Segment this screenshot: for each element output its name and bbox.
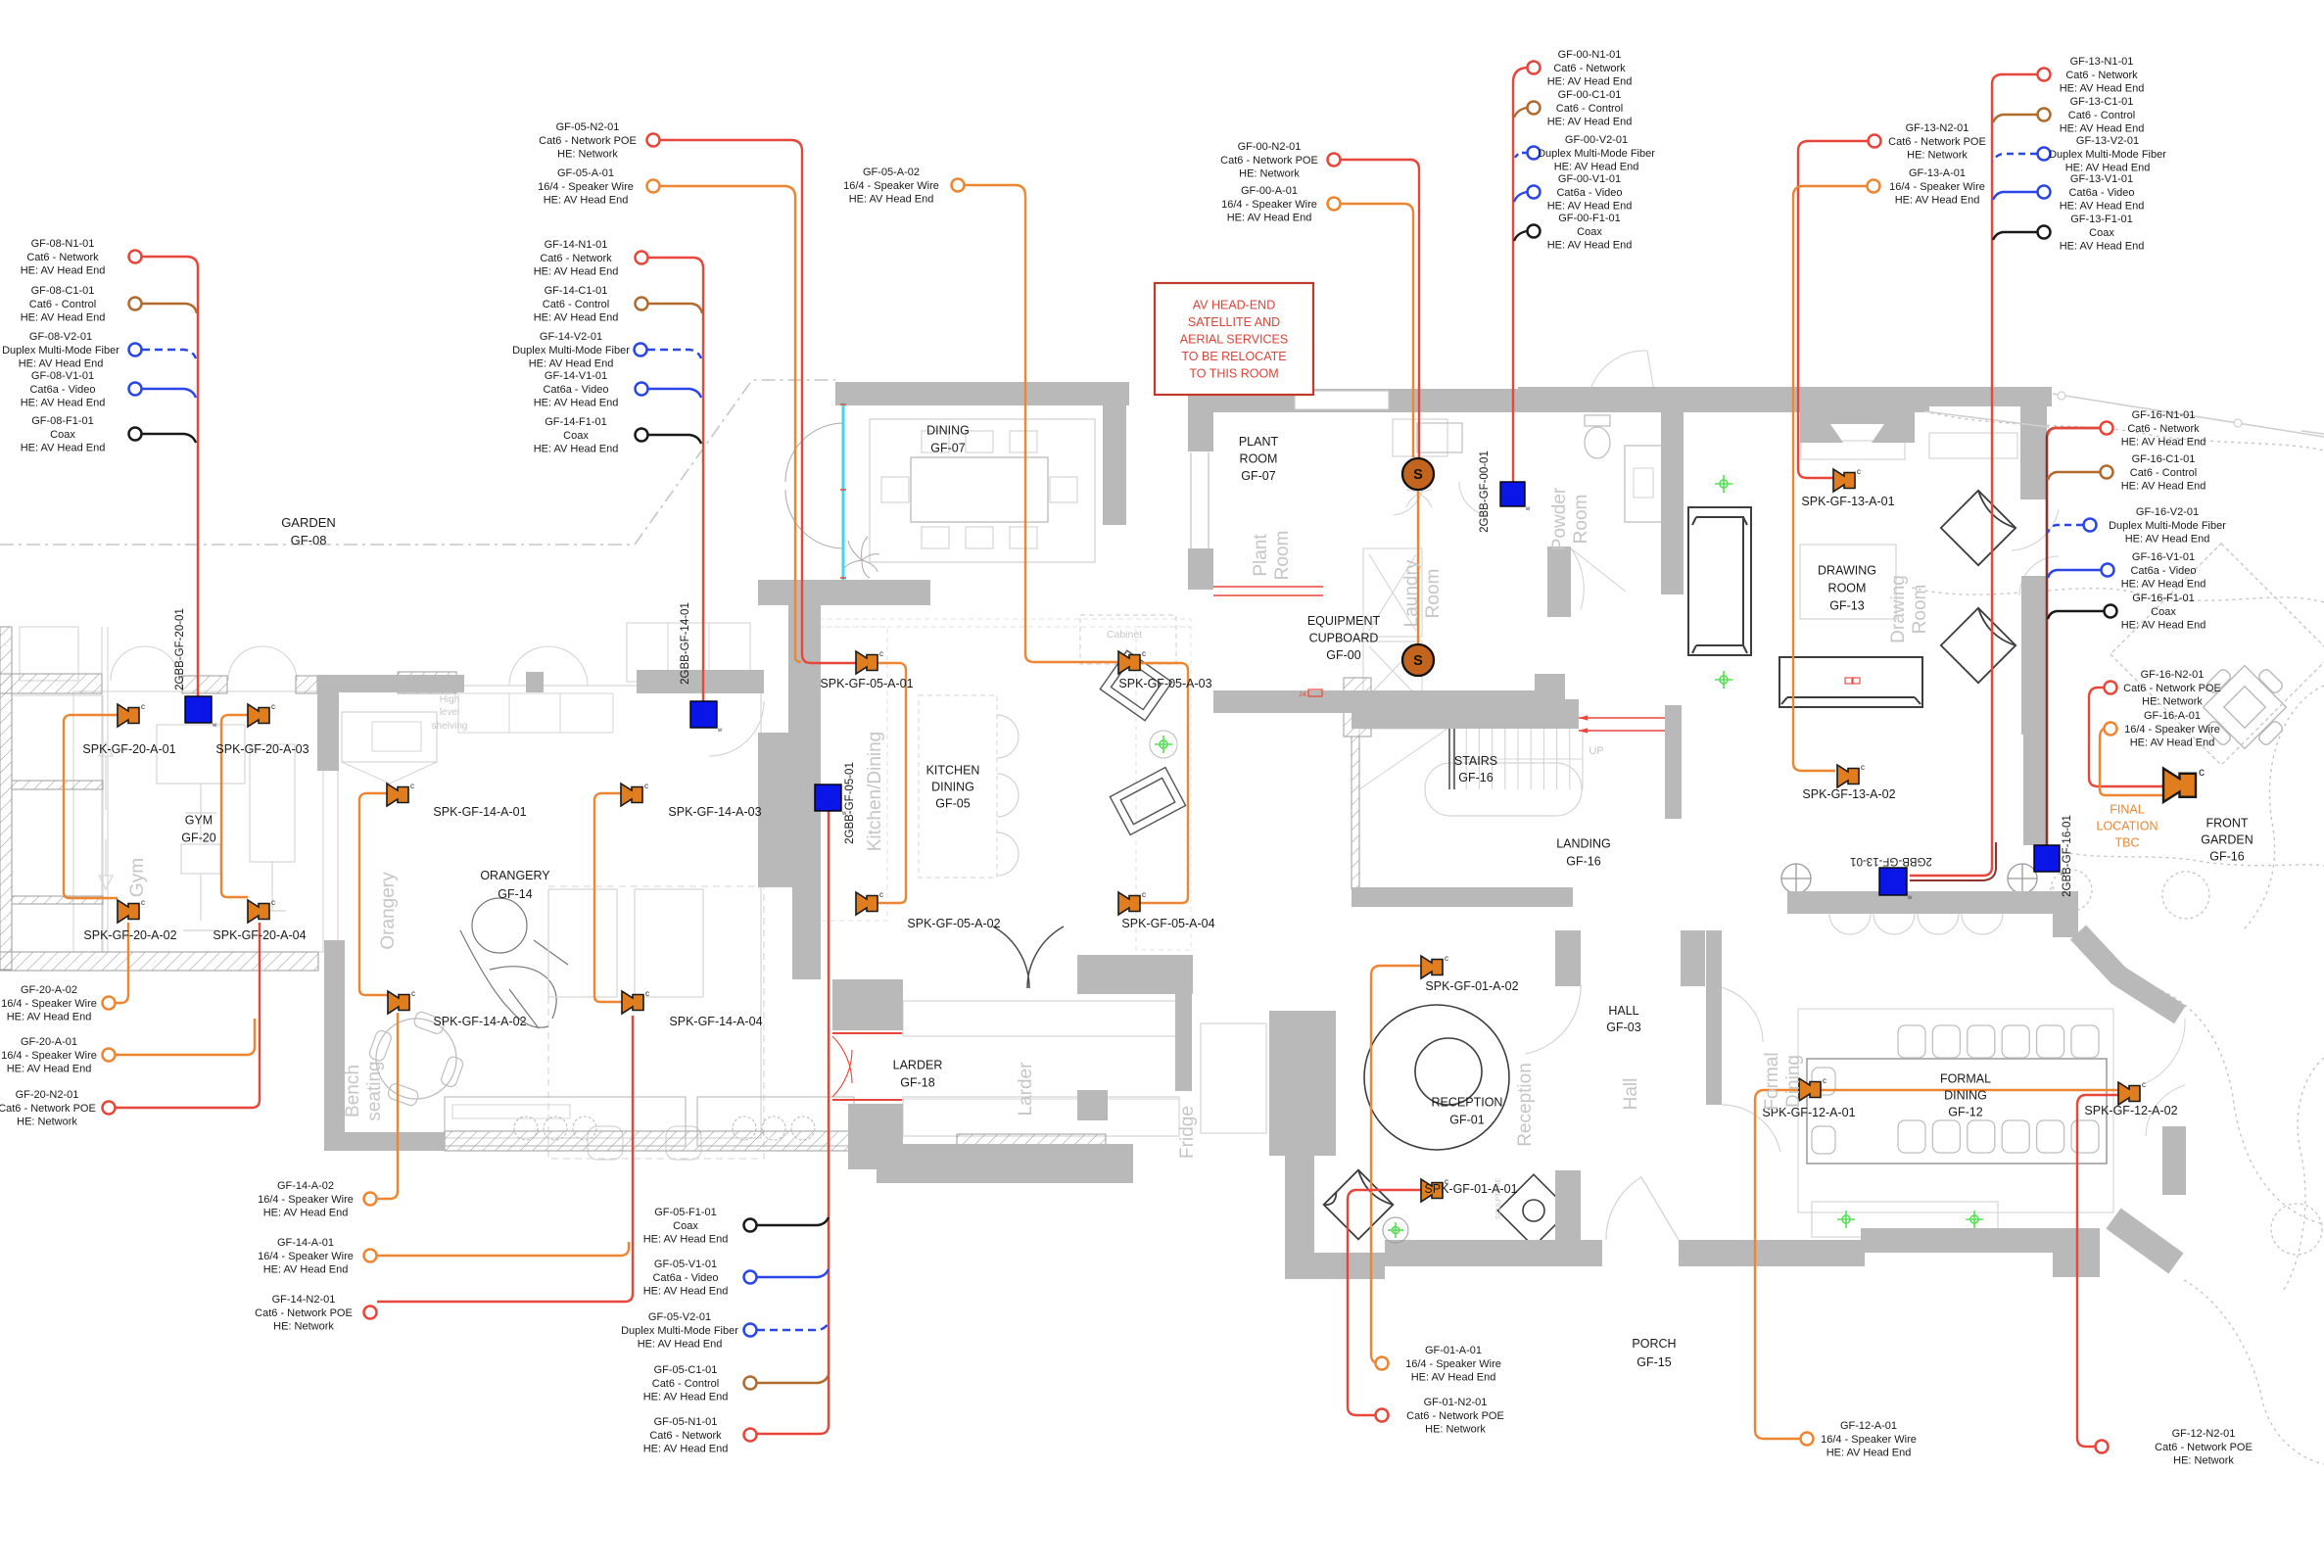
svg-text:GF-13-F1-01: GF-13-F1-01 <box>2070 214 2133 225</box>
svg-text:HE: AV Head End: HE: AV Head End <box>643 1392 729 1403</box>
svg-text:Cat6 - Network: Cat6 - Network <box>26 252 99 263</box>
svg-text:GF-12-A-01: GF-12-A-01 <box>1840 1420 1897 1432</box>
svg-text:Duplex Multi-Mode Fiber: Duplex Multi-Mode Fiber <box>512 345 630 356</box>
svg-text:Cat6 - Network: Cat6 - Network <box>540 253 612 264</box>
svg-text:GF-13-V1-01: GF-13-V1-01 <box>2070 173 2133 185</box>
svg-text:c: c <box>879 890 883 899</box>
svg-text:SPK-GF-05-A-01: SPK-GF-05-A-01 <box>820 677 913 690</box>
svg-text:GF-14: GF-14 <box>498 887 532 901</box>
svg-text:SPK-GF-14-A-02: SPK-GF-14-A-02 <box>433 1015 526 1028</box>
svg-text:LOCATION: LOCATION <box>2097 819 2158 832</box>
svg-text:HE: AV Head End: HE: AV Head End <box>21 398 106 409</box>
svg-text:GF-05-A-02: GF-05-A-02 <box>863 166 920 178</box>
svg-text:Dining: Dining <box>1783 1055 1804 1108</box>
svg-text:GYM: GYM <box>185 813 213 827</box>
svg-text:HE: AV Head End: HE: AV Head End <box>21 312 106 324</box>
svg-text:Cat6 - Control: Cat6 - Control <box>1556 103 1623 115</box>
svg-text:c: c <box>1857 467 1861 476</box>
svg-text:16/4 - Speaker Wire: 16/4 - Speaker Wire <box>258 1251 354 1262</box>
svg-text:GF-20: GF-20 <box>181 831 215 844</box>
svg-text:GF-13: GF-13 <box>1829 598 1864 612</box>
svg-text:GF-00-C1-01: GF-00-C1-01 <box>1558 89 1622 101</box>
svg-text:HE: AV Head End: HE: AV Head End <box>263 1208 349 1219</box>
svg-text:HE: Network: HE: Network <box>2142 696 2203 708</box>
svg-text:HE: AV Head End: HE: AV Head End <box>638 1339 723 1351</box>
svg-text:HE: AV Head End: HE: AV Head End <box>7 1064 92 1075</box>
svg-text:HE: AV Head End: HE: AV Head End <box>2125 534 2210 546</box>
svg-text:Cat6a - Video: Cat6a - Video <box>2130 565 2196 577</box>
svg-text:c: c <box>411 989 415 998</box>
svg-text:GF-08-F1-01: GF-08-F1-01 <box>31 415 94 427</box>
svg-text:GF-12: GF-12 <box>1948 1105 1982 1118</box>
svg-text:Duplex Multi-Mode Fiber: Duplex Multi-Mode Fiber <box>2049 149 2166 161</box>
svg-text:SPK-GF-13-A-02: SPK-GF-13-A-02 <box>1802 787 1895 801</box>
svg-text:SPK-GF-14-A-01: SPK-GF-14-A-01 <box>433 805 526 819</box>
svg-text:ROOM: ROOM <box>1240 451 1278 465</box>
svg-text:w: w <box>717 728 723 734</box>
svg-text:Cat6 - Network: Cat6 - Network <box>2127 423 2200 435</box>
svg-text:Room: Room <box>1571 495 1591 545</box>
svg-text:c: c <box>2142 1080 2146 1089</box>
svg-text:c: c <box>271 702 275 711</box>
svg-text:TBC: TBC <box>2115 835 2140 849</box>
svg-text:FRONT: FRONT <box>2205 816 2248 830</box>
svg-text:Bench: Bench <box>343 1065 363 1117</box>
svg-text:HE: AV Head End: HE: AV Head End <box>1411 1372 1496 1384</box>
svg-text:Cat6 - Network: Cat6 - Network <box>2065 70 2138 81</box>
svg-text:2GBB-GF-13-01: 2GBB-GF-13-01 <box>1850 855 1932 867</box>
svg-text:16/4 - Speaker Wire: 16/4 - Speaker Wire <box>1 1050 97 1062</box>
svg-text:CUPBOARD: CUPBOARD <box>1309 631 1379 644</box>
svg-text:FINAL: FINAL <box>2110 802 2144 816</box>
svg-text:HE: Network: HE: Network <box>1239 168 1300 180</box>
svg-text:GF-13-V2-01: GF-13-V2-01 <box>2076 135 2139 147</box>
svg-text:Cat6 - Control: Cat6 - Control <box>2130 467 2197 479</box>
svg-text:HE: AV Head End: HE: AV Head End <box>1826 1448 1912 1459</box>
svg-text:GF-00-A-01: GF-00-A-01 <box>1241 185 1298 197</box>
svg-text:GF-15: GF-15 <box>1636 1355 1671 1369</box>
svg-text:Reception: Reception <box>1515 1063 1536 1147</box>
svg-text:shelving: shelving <box>432 721 468 732</box>
svg-text:LANDING: LANDING <box>1556 836 1611 850</box>
svg-text:GF-05-C1-01: GF-05-C1-01 <box>654 1364 718 1376</box>
svg-text:GF-05-N1-01: GF-05-N1-01 <box>654 1416 718 1428</box>
svg-text:TO BE RELOCATE: TO BE RELOCATE <box>1181 350 1286 363</box>
svg-text:GF-01-A-01: GF-01-A-01 <box>1425 1345 1482 1356</box>
svg-text:c: c <box>2199 765 2205 779</box>
svg-text:16/4 - Speaker Wire: 16/4 - Speaker Wire <box>1821 1434 1917 1446</box>
svg-text:GF-08-C1-01: GF-08-C1-01 <box>31 285 95 297</box>
svg-text:GF-05-V1-01: GF-05-V1-01 <box>654 1259 717 1270</box>
svg-text:Cat6 - Network POE: Cat6 - Network POE <box>2155 1442 2253 1453</box>
svg-text:16/4 - Speaker Wire: 16/4 - Speaker Wire <box>538 181 634 193</box>
svg-text:GF-16: GF-16 <box>1566 854 1600 868</box>
svg-text:GF-08: GF-08 <box>291 533 327 547</box>
svg-text:Cat6 - Network POE: Cat6 - Network POE <box>2123 683 2221 694</box>
svg-text:Cabinet: Cabinet <box>1107 629 1142 641</box>
svg-text:GF-16-V1-01: GF-16-V1-01 <box>2132 551 2195 563</box>
svg-text:HE: AV Head End: HE: AV Head End <box>2060 241 2145 253</box>
svg-text:HE: AV Head End: HE: AV Head End <box>544 195 629 207</box>
svg-text:HE: Network: HE: Network <box>2173 1455 2234 1467</box>
svg-text:RECEPTION: RECEPTION <box>1432 1095 1503 1109</box>
svg-text:16/4 - Speaker Wire: 16/4 - Speaker Wire <box>258 1194 354 1206</box>
svg-text:Plant: Plant <box>1251 534 1271 577</box>
svg-text:DRAWING: DRAWING <box>1818 563 1876 577</box>
svg-text:AV HEAD-END: AV HEAD-END <box>1193 298 1276 311</box>
svg-text:HE: AV Head End: HE: AV Head End <box>534 266 619 278</box>
svg-text:Cat6 - Network POE: Cat6 - Network POE <box>255 1307 353 1319</box>
svg-text:GF-14-C1-01: GF-14-C1-01 <box>545 285 608 297</box>
svg-text:GF-16-F1-01: GF-16-F1-01 <box>2132 593 2195 604</box>
svg-text:GF-00-V1-01: GF-00-V1-01 <box>1558 173 1621 185</box>
svg-text:HE: AV Head End: HE: AV Head End <box>529 358 614 370</box>
svg-text:HE: AV Head End: HE: AV Head End <box>2130 737 2215 749</box>
svg-text:Drawing: Drawing <box>1888 575 1909 643</box>
svg-text:ORANGERY: ORANGERY <box>480 869 550 882</box>
svg-text:GF-14-N1-01: GF-14-N1-01 <box>545 239 608 251</box>
svg-text:SPK-GF-14-A-04: SPK-GF-14-A-04 <box>669 1015 762 1028</box>
svg-text:Cat6 - Network POE: Cat6 - Network POE <box>0 1103 96 1115</box>
svg-text:GF-07: GF-07 <box>930 441 965 454</box>
svg-text:Cat6 - Network POE: Cat6 - Network POE <box>1406 1410 1504 1422</box>
svg-text:SPK-GF-01-A-02: SPK-GF-01-A-02 <box>1425 979 1518 993</box>
svg-text:HE: AV Head End: HE: AV Head End <box>2065 163 2151 174</box>
svg-text:GF-20-A-02: GF-20-A-02 <box>21 984 77 996</box>
svg-text:GF-01-N2-01: GF-01-N2-01 <box>1424 1397 1488 1408</box>
svg-text:c: c <box>271 898 275 907</box>
svg-text:GF-20-N2-01: GF-20-N2-01 <box>16 1089 79 1101</box>
svg-text:SATELLITE AND: SATELLITE AND <box>1188 315 1280 329</box>
svg-text:Laundry: Laundry <box>1401 559 1422 627</box>
svg-text:Cat6 - Control: Cat6 - Control <box>543 299 609 310</box>
svg-text:KITCHEN: KITCHEN <box>926 763 980 777</box>
svg-text:GARDEN: GARDEN <box>281 515 336 530</box>
svg-text:Duplex Multi-Mode Fiber: Duplex Multi-Mode Fiber <box>2 345 119 356</box>
svg-text:Cat6 - Control: Cat6 - Control <box>29 299 96 310</box>
svg-text:24: 24 <box>1299 691 1306 698</box>
svg-text:Cat6 - Network: Cat6 - Network <box>649 1430 722 1442</box>
svg-text:seating: seating <box>364 1061 385 1120</box>
svg-text:Cat6 - Control: Cat6 - Control <box>652 1378 719 1390</box>
svg-text:S: S <box>1413 467 1423 483</box>
svg-text:HE: AV Head End: HE: AV Head End <box>19 358 104 370</box>
svg-text:GF-13-N1-01: GF-13-N1-01 <box>2070 56 2134 68</box>
svg-text:16/4 - Speaker Wire: 16/4 - Speaker Wire <box>1889 181 1985 193</box>
svg-text:GF-20-A-01: GF-20-A-01 <box>21 1036 77 1048</box>
svg-text:Cat6a - Video: Cat6a - Video <box>1556 187 1622 199</box>
svg-text:SPK-GF-20-A-03: SPK-GF-20-A-03 <box>215 742 308 756</box>
svg-text:Hall: Hall <box>1621 1078 1641 1111</box>
svg-text:Cat6 - Network: Cat6 - Network <box>1553 63 1626 74</box>
svg-text:GF-14-A-02: GF-14-A-02 <box>277 1180 334 1192</box>
svg-text:HE: AV Head End: HE: AV Head End <box>1227 213 1312 224</box>
svg-text:Cat6a - Video: Cat6a - Video <box>543 384 608 396</box>
svg-text:S: S <box>1413 653 1423 669</box>
svg-text:HALL: HALL <box>1608 1004 1638 1018</box>
svg-text:SPK-GF-20-A-02: SPK-GF-20-A-02 <box>83 928 176 942</box>
svg-text:Orangery: Orangery <box>378 872 399 950</box>
svg-text:GF-05: GF-05 <box>935 796 970 810</box>
svg-text:HE: AV Head End: HE: AV Head End <box>1547 240 1633 252</box>
svg-text:c: c <box>141 898 145 907</box>
svg-text:HE: Network: HE: Network <box>1425 1424 1486 1436</box>
svg-text:SPK-GF-13-A-01: SPK-GF-13-A-01 <box>1801 495 1894 508</box>
svg-text:HE: AV Head End: HE: AV Head End <box>1547 201 1633 213</box>
svg-text:SPK-GF-05-A-04: SPK-GF-05-A-04 <box>1121 917 1214 930</box>
svg-text:STAIRS: STAIRS <box>1454 754 1497 768</box>
svg-text:HE: AV Head End: HE: AV Head End <box>21 265 106 277</box>
svg-text:Room: Room <box>1272 531 1293 581</box>
svg-text:PORCH: PORCH <box>1632 1337 1676 1351</box>
svg-text:Coax: Coax <box>1577 226 1602 238</box>
svg-text:HE: AV Head End: HE: AV Head End <box>849 194 934 206</box>
svg-text:GF-00-F1-01: GF-00-F1-01 <box>1558 213 1621 224</box>
svg-text:SPK-GF-05-A-02: SPK-GF-05-A-02 <box>907 917 1000 930</box>
svg-text:c: c <box>1142 649 1146 658</box>
svg-text:c: c <box>879 649 883 658</box>
svg-text:SPK-GF-01-A-01: SPK-GF-01-A-01 <box>1424 1182 1517 1196</box>
svg-text:FORMAL: FORMAL <box>1940 1071 1991 1085</box>
svg-text:2GBB-GF-16-01: 2GBB-GF-16-01 <box>2062 815 2073 897</box>
svg-text:Cat6 - Network POE: Cat6 - Network POE <box>539 135 637 147</box>
svg-text:DINING: DINING <box>931 780 974 793</box>
svg-text:2GBB-GF-14-01: 2GBB-GF-14-01 <box>680 602 691 685</box>
svg-text:c: c <box>645 989 649 998</box>
svg-text:GF-01: GF-01 <box>1449 1113 1484 1126</box>
svg-text:Coax: Coax <box>50 429 75 441</box>
svg-text:HE: Network: HE: Network <box>557 149 618 161</box>
svg-text:HE: Network: HE: Network <box>273 1321 334 1333</box>
svg-text:GF-13-C1-01: GF-13-C1-01 <box>2070 96 2134 108</box>
svg-text:Duplex Multi-Mode Fiber: Duplex Multi-Mode Fiber <box>621 1325 738 1337</box>
svg-text:GF-16-C1-01: GF-16-C1-01 <box>2132 453 2196 465</box>
svg-text:HE: AV Head End: HE: AV Head End <box>534 398 619 409</box>
svg-text:HE: AV Head End: HE: AV Head End <box>1895 195 1980 207</box>
svg-text:ROOM: ROOM <box>1828 581 1867 594</box>
svg-text:Cat6a - Video: Cat6a - Video <box>29 384 95 396</box>
svg-text:Room: Room <box>1423 569 1444 619</box>
svg-text:HE: AV Head End: HE: AV Head End <box>1554 162 1639 173</box>
svg-text:c: c <box>141 702 145 711</box>
svg-text:HE: AV Head End: HE: AV Head End <box>643 1444 729 1455</box>
svg-text:GF-14-A-01: GF-14-A-01 <box>277 1237 334 1249</box>
svg-text:GF-00-N2-01: GF-00-N2-01 <box>1238 141 1302 153</box>
svg-text:GF-16-V2-01: GF-16-V2-01 <box>2136 506 2199 518</box>
svg-text:GF-08-N1-01: GF-08-N1-01 <box>31 238 95 250</box>
svg-text:GF-08-V1-01: GF-08-V1-01 <box>31 370 94 382</box>
svg-text:AERIAL SERVICES: AERIAL SERVICES <box>1180 332 1288 346</box>
svg-text:HE: Network: HE: Network <box>17 1117 77 1128</box>
svg-text:16/4 - Speaker Wire: 16/4 - Speaker Wire <box>1221 199 1317 211</box>
svg-text:GF-14-V1-01: GF-14-V1-01 <box>545 370 607 382</box>
svg-text:2GBB-GF-00-01: 2GBB-GF-00-01 <box>1479 451 1491 533</box>
svg-text:EQUIPMENT: EQUIPMENT <box>1307 614 1381 628</box>
svg-text:w: w <box>212 723 217 729</box>
svg-text:SPK-GF-14-A-03: SPK-GF-14-A-03 <box>668 805 761 819</box>
svg-text:GF-05-N2-01: GF-05-N2-01 <box>556 121 620 133</box>
svg-text:GF-16: GF-16 <box>1458 771 1493 784</box>
svg-text:GF-16-N1-01: GF-16-N1-01 <box>2132 409 2196 421</box>
svg-text:SPK-GF-12-A-02: SPK-GF-12-A-02 <box>2084 1104 2177 1117</box>
svg-text:Cat6a - Video: Cat6a - Video <box>652 1272 718 1284</box>
svg-text:SPK-GF-20-A-04: SPK-GF-20-A-04 <box>213 928 306 942</box>
svg-text:PLANT: PLANT <box>1239 435 1279 449</box>
svg-text:Cat6 - Network POE: Cat6 - Network POE <box>1888 136 1986 148</box>
svg-text:Duplex Multi-Mode Fiber: Duplex Multi-Mode Fiber <box>2109 520 2226 532</box>
svg-text:SPK-GF-05-A-03: SPK-GF-05-A-03 <box>1118 677 1211 690</box>
svg-text:Formal: Formal <box>1762 1052 1782 1110</box>
svg-text:HE: AV Head End: HE: AV Head End <box>534 312 619 324</box>
svg-text:Larder: Larder <box>1016 1062 1036 1117</box>
svg-text:2GBB-GF-05-01: 2GBB-GF-05-01 <box>844 762 856 844</box>
svg-text:DINING: DINING <box>926 423 970 437</box>
svg-text:GF-14-V2-01: GF-14-V2-01 <box>540 331 602 343</box>
svg-text:Kitchen/Dining: Kitchen/Dining <box>865 732 885 852</box>
svg-text:c: c <box>1861 763 1865 772</box>
svg-text:High: High <box>440 694 460 705</box>
svg-text:16/4 - Speaker Wire: 16/4 - Speaker Wire <box>1 998 97 1010</box>
svg-text:16/4 - Speaker Wire: 16/4 - Speaker Wire <box>1405 1358 1501 1370</box>
svg-text:LARDER: LARDER <box>893 1058 943 1071</box>
svg-text:HE: AV Head End: HE: AV Head End <box>2060 123 2145 135</box>
svg-text:level: level <box>440 707 460 718</box>
svg-text:GF-14-F1-01: GF-14-F1-01 <box>545 416 607 428</box>
svg-text:c: c <box>1823 1076 1826 1085</box>
svg-text:Gym: Gym <box>127 858 148 897</box>
svg-text:GF-00-N1-01: GF-00-N1-01 <box>1558 49 1622 61</box>
svg-text:GF-16: GF-16 <box>2209 849 2244 863</box>
svg-text:GF-13-A-01: GF-13-A-01 <box>1909 167 1966 179</box>
svg-text:w: w <box>1525 506 1531 512</box>
svg-text:HE: AV Head End: HE: AV Head End <box>643 1234 729 1246</box>
svg-text:Cat6 - Network POE: Cat6 - Network POE <box>1220 155 1318 166</box>
svg-text:HE: AV Head End: HE: AV Head End <box>7 1012 92 1023</box>
svg-text:HE: AV Head End: HE: AV Head End <box>2121 437 2206 449</box>
svg-text:GF-13-N2-01: GF-13-N2-01 <box>1906 122 1969 134</box>
svg-text:16/4 - Speaker Wire: 16/4 - Speaker Wire <box>2124 724 2220 736</box>
svg-text:c: c <box>410 782 414 790</box>
svg-text:HE: AV Head End: HE: AV Head End <box>2121 481 2206 493</box>
svg-text:Cat6a - Video: Cat6a - Video <box>2068 187 2134 199</box>
svg-text:GF-03: GF-03 <box>1606 1021 1640 1034</box>
svg-text:GF-18: GF-18 <box>900 1075 934 1089</box>
svg-text:Powder: Powder <box>1549 487 1570 550</box>
svg-text:Cat6 - Control: Cat6 - Control <box>2068 110 2135 121</box>
svg-text:TO THIS ROOM: TO THIS ROOM <box>1189 366 1278 380</box>
svg-text:GF-00: GF-00 <box>1326 648 1360 662</box>
svg-text:HE: AV Head End: HE: AV Head End <box>2121 579 2206 591</box>
svg-text:GF-07: GF-07 <box>1241 469 1275 483</box>
svg-text:2GBB-GF-20-01: 2GBB-GF-20-01 <box>174 608 186 690</box>
svg-text:GF-12-N2-01: GF-12-N2-01 <box>2172 1428 2236 1440</box>
svg-text:GF-05-A-01: GF-05-A-01 <box>557 167 614 179</box>
svg-text:w: w <box>1907 895 1913 901</box>
svg-text:Coax: Coax <box>673 1220 698 1232</box>
svg-text:HE: AV Head End: HE: AV Head End <box>21 443 106 454</box>
svg-text:c: c <box>1142 890 1146 899</box>
svg-text:Coax: Coax <box>2089 227 2114 239</box>
svg-text:UP: UP <box>1589 745 1603 757</box>
svg-text:HE: AV Head End: HE: AV Head End <box>1547 117 1633 128</box>
svg-text:HE: AV Head End: HE: AV Head End <box>534 444 619 455</box>
svg-text:HE: AV Head End: HE: AV Head End <box>2060 83 2145 95</box>
svg-text:HE: AV Head End: HE: AV Head End <box>263 1264 349 1276</box>
svg-text:Fridge: Fridge <box>1177 1106 1198 1159</box>
svg-text:Duplex Multi-Mode Fiber: Duplex Multi-Mode Fiber <box>1538 148 1655 160</box>
svg-text:HE: AV Head End: HE: AV Head End <box>2121 620 2206 632</box>
svg-text:Coax: Coax <box>563 430 589 442</box>
svg-text:GARDEN: GARDEN <box>2201 832 2253 846</box>
svg-text:HE: AV Head End: HE: AV Head End <box>1547 76 1633 88</box>
svg-text:GF-00-V2-01: GF-00-V2-01 <box>1565 134 1628 146</box>
svg-text:GF-08-V2-01: GF-08-V2-01 <box>29 331 92 343</box>
svg-text:GF-16-N2-01: GF-16-N2-01 <box>2141 669 2205 681</box>
svg-text:GF-05-V2-01: GF-05-V2-01 <box>648 1311 711 1323</box>
svg-text:HE: AV Head End: HE: AV Head End <box>643 1286 729 1298</box>
svg-text:HE: AV Head End: HE: AV Head End <box>2060 201 2145 213</box>
svg-text:GF-16-A-01: GF-16-A-01 <box>2144 710 2201 722</box>
svg-text:Room: Room <box>1910 585 1930 635</box>
svg-text:c: c <box>1445 954 1448 963</box>
svg-text:DINING: DINING <box>1944 1088 1987 1102</box>
svg-text:HE: Network: HE: Network <box>1907 150 1968 162</box>
svg-text:GF-05-F1-01: GF-05-F1-01 <box>654 1207 717 1218</box>
svg-text:Coax: Coax <box>2151 606 2176 618</box>
svg-text:16/4 - Speaker Wire: 16/4 - Speaker Wire <box>843 180 939 192</box>
svg-text:GF-14-N2-01: GF-14-N2-01 <box>272 1294 336 1306</box>
svg-text:c: c <box>644 782 648 790</box>
svg-text:SPK-GF-20-A-01: SPK-GF-20-A-01 <box>82 742 175 756</box>
